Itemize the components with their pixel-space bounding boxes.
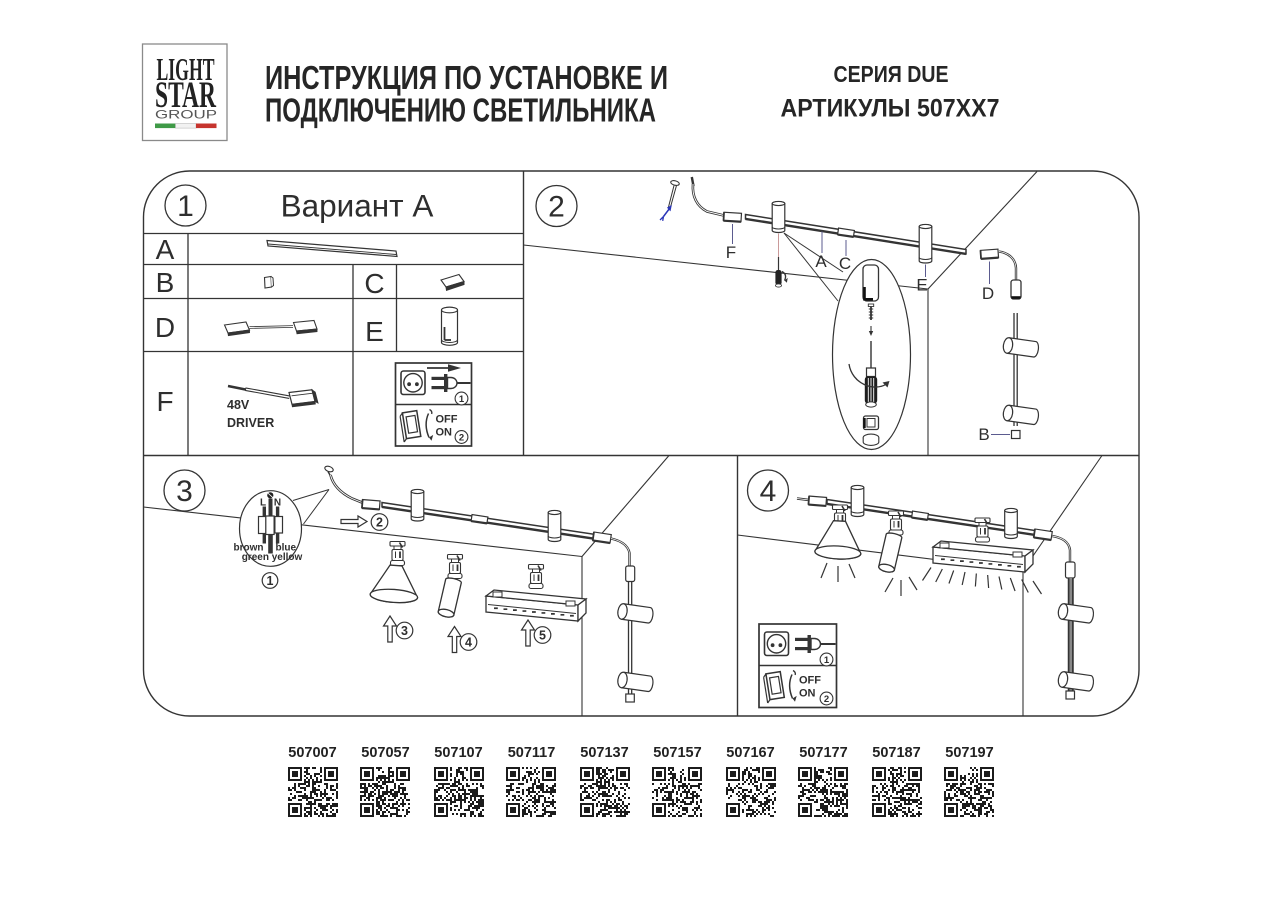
svg-text:F: F <box>156 386 173 417</box>
svg-text:4: 4 <box>760 475 777 508</box>
svg-text:B: B <box>156 267 175 298</box>
svg-text:F: F <box>726 243 736 262</box>
svg-text:ON: ON <box>799 688 816 700</box>
svg-text:E: E <box>365 316 384 347</box>
svg-text:507057: 507057 <box>361 745 409 761</box>
svg-text:green yellow: green yellow <box>242 552 303 563</box>
svg-text:48V: 48V <box>227 398 250 412</box>
svg-text:507157: 507157 <box>653 745 701 761</box>
svg-text:507117: 507117 <box>508 745 556 761</box>
svg-text:ПОДКЛЮЧЕНИЮ СВЕТИЛЬНИКА: ПОДКЛЮЧЕНИЮ СВЕТИЛЬНИКА <box>265 92 656 129</box>
svg-text:2: 2 <box>824 694 829 705</box>
svg-text:Вариант А: Вариант А <box>281 188 434 224</box>
svg-text:2: 2 <box>548 191 565 224</box>
svg-text:СЕРИЯ DUE: СЕРИЯ DUE <box>834 61 949 87</box>
svg-text:507007: 507007 <box>288 745 336 761</box>
svg-text:E: E <box>916 276 927 295</box>
svg-text:D: D <box>982 284 994 303</box>
svg-text:5: 5 <box>539 629 546 643</box>
svg-text:OFF: OFF <box>436 414 458 426</box>
svg-text:D: D <box>155 312 175 343</box>
svg-text:1: 1 <box>824 655 830 666</box>
svg-text:OFF: OFF <box>799 675 821 687</box>
svg-text:507197: 507197 <box>945 745 993 761</box>
svg-text:4: 4 <box>465 636 472 650</box>
svg-text:C: C <box>364 268 384 299</box>
svg-text:1: 1 <box>177 190 194 223</box>
svg-text:507167: 507167 <box>726 745 774 761</box>
svg-text:A: A <box>156 234 175 265</box>
svg-text:GROUP: GROUP <box>155 108 217 122</box>
svg-text:АРТИКУЛЫ 507ХХ7: АРТИКУЛЫ 507ХХ7 <box>781 95 1000 123</box>
svg-text:3: 3 <box>401 624 408 638</box>
svg-text:507137: 507137 <box>580 745 628 761</box>
svg-text:3: 3 <box>176 475 193 508</box>
svg-text:507177: 507177 <box>799 745 847 761</box>
svg-text:1: 1 <box>267 574 274 588</box>
svg-text:ON: ON <box>436 427 453 439</box>
svg-text:2: 2 <box>459 432 464 443</box>
svg-text:1: 1 <box>459 394 465 405</box>
svg-text:ИНСТРУКЦИЯ ПО УСТАНОВКЕ И: ИНСТРУКЦИЯ ПО УСТАНОВКЕ И <box>265 59 668 96</box>
svg-text:DRIVER: DRIVER <box>227 416 274 430</box>
svg-text:B: B <box>978 425 989 444</box>
svg-text:2: 2 <box>376 516 383 530</box>
svg-text:507187: 507187 <box>872 745 920 761</box>
svg-text:507107: 507107 <box>434 745 482 761</box>
